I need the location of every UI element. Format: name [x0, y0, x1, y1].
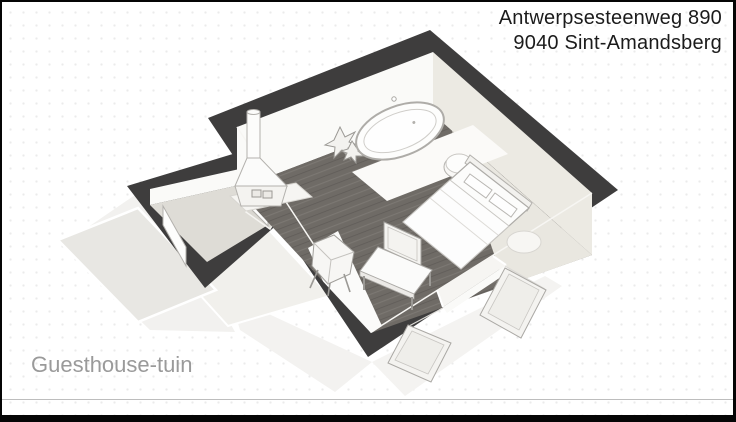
address: Antwerpsesteenweg 890 9040 Sint-Amandsbe…	[499, 6, 722, 56]
floor-plan-canvas: Antwerpsesteenweg 890 9040 Sint-Amandsbe…	[0, 0, 736, 422]
bedside-round-rug	[507, 231, 541, 253]
bottom-divider	[2, 399, 733, 400]
address-line-2: 9040 Sint-Amandsberg	[499, 31, 722, 56]
area-label: Guesthouse-tuin	[31, 352, 192, 378]
tub-faucet	[392, 97, 396, 101]
address-line-1: Antwerpsesteenweg 890	[499, 6, 722, 31]
